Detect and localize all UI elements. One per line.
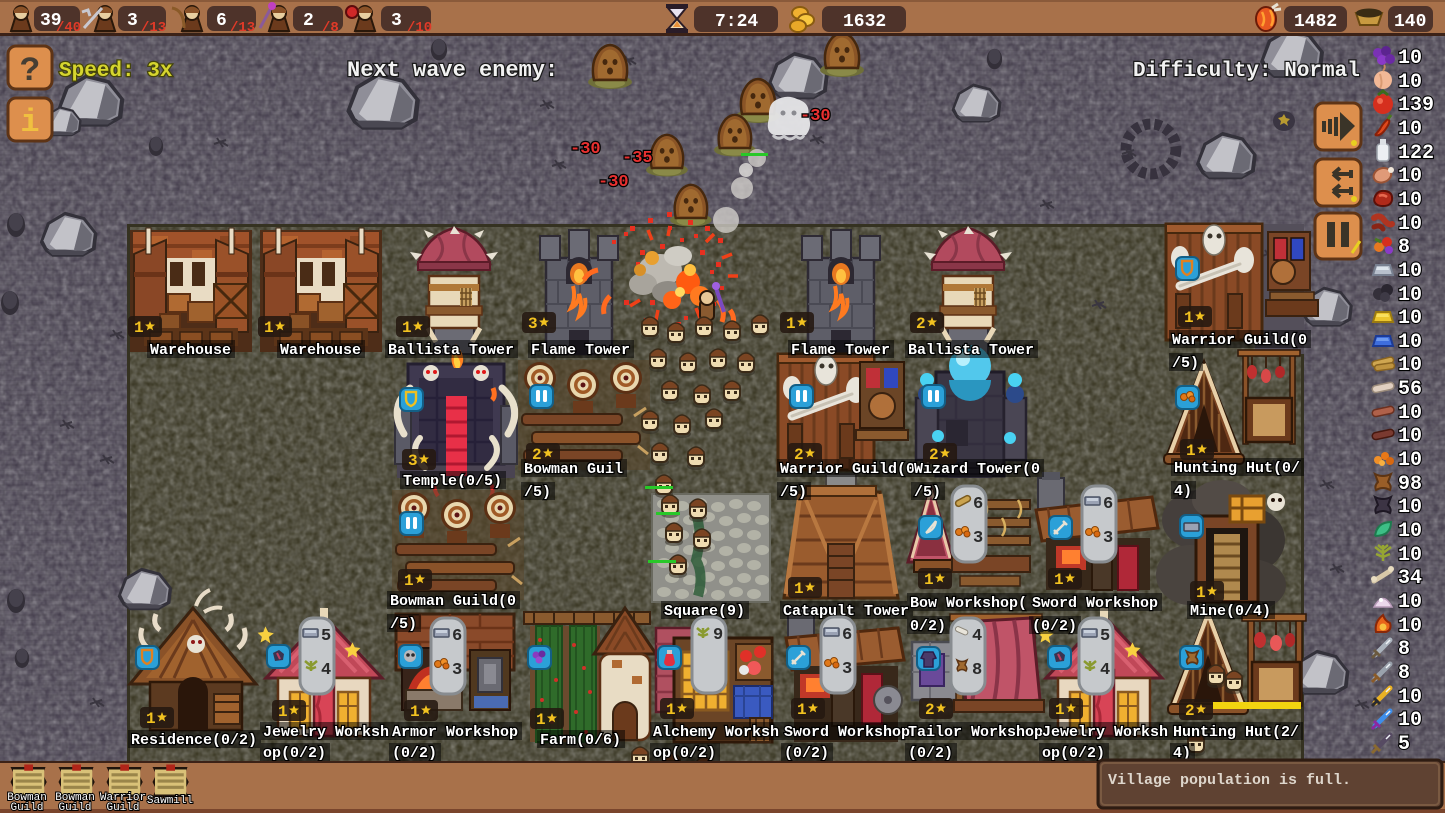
svg-text:5: 5: [1398, 733, 1410, 756]
svg-text:4: 4: [1100, 661, 1110, 680]
svg-text:1: 1: [404, 572, 414, 590]
svg-text:Residence(0/2): Residence(0/2): [131, 732, 257, 749]
svg-text:10: 10: [1398, 520, 1422, 543]
svg-text:10: 10: [1398, 213, 1422, 236]
svg-text:Flame Tower: Flame Tower: [531, 342, 630, 359]
svg-text:1482: 1482: [1294, 12, 1337, 32]
svg-text:2: 2: [532, 446, 542, 464]
svg-text:1: 1: [402, 319, 412, 337]
svg-text:Hunting Hut(0/: Hunting Hut(0/: [1174, 460, 1300, 477]
svg-text:2: 2: [925, 701, 935, 719]
svg-text:Village population is full.: Village population is full.: [1108, 772, 1351, 789]
svg-text:10: 10: [1398, 118, 1422, 141]
svg-text:1: 1: [786, 315, 796, 333]
svg-text:4): 4): [1174, 483, 1192, 500]
svg-text:10: 10: [1398, 615, 1422, 638]
svg-text:10: 10: [1398, 331, 1422, 354]
svg-text:1: 1: [1055, 701, 1065, 719]
svg-text:Next wave enemy:: Next wave enemy:: [347, 58, 558, 83]
svg-text:10: 10: [1398, 47, 1422, 70]
svg-text:-35: -35: [622, 149, 653, 168]
svg-text:Sword Workshop: Sword Workshop: [784, 724, 910, 741]
svg-text:140: 140: [1394, 12, 1426, 32]
svg-text:/5): /5): [390, 616, 417, 633]
svg-text:(0/2): (0/2): [908, 745, 953, 762]
svg-text:122: 122: [1398, 142, 1434, 165]
svg-text:6: 6: [216, 11, 227, 31]
svg-text:(0/2): (0/2): [392, 745, 437, 762]
svg-text:10: 10: [1398, 260, 1422, 283]
svg-text:1: 1: [794, 580, 804, 598]
svg-text:Guild: Guild: [58, 802, 91, 813]
svg-text:Alchemy Worksh: Alchemy Worksh: [653, 724, 779, 741]
svg-text:Bow Workshop(: Bow Workshop(: [910, 595, 1027, 612]
svg-text:/5): /5): [524, 484, 551, 501]
svg-text:/40: /40: [56, 20, 81, 36]
svg-text:8: 8: [1398, 662, 1410, 685]
svg-text:Warehouse: Warehouse: [150, 342, 231, 359]
svg-text:1: 1: [278, 703, 288, 721]
svg-text:3: 3: [452, 661, 462, 680]
svg-text:10: 10: [1398, 591, 1422, 614]
svg-text:-30: -30: [570, 140, 601, 159]
svg-text:Speed: 3x: Speed: 3x: [59, 60, 173, 83]
svg-text:Difficulty: Normal: Difficulty: Normal: [1133, 60, 1360, 83]
svg-text:10: 10: [1398, 686, 1422, 709]
svg-text:10: 10: [1398, 425, 1422, 448]
svg-text:Farm(0/6): Farm(0/6): [540, 732, 621, 749]
svg-text:/5): /5): [914, 484, 941, 501]
svg-text:10: 10: [1398, 189, 1422, 212]
svg-text:10: 10: [1398, 402, 1422, 425]
svg-text:56: 56: [1398, 378, 1422, 401]
svg-text:(0/2): (0/2): [1032, 618, 1077, 635]
svg-text:10: 10: [1398, 544, 1422, 567]
svg-text:6: 6: [842, 626, 852, 645]
svg-text:/5): /5): [780, 484, 807, 501]
svg-text:/13: /13: [230, 20, 255, 36]
svg-text:Guild: Guild: [10, 802, 43, 813]
svg-text:1: 1: [264, 319, 274, 337]
svg-text:op(0/2): op(0/2): [653, 745, 716, 762]
svg-text:/10: /10: [407, 20, 432, 36]
svg-text:10: 10: [1398, 307, 1422, 330]
svg-text:10: 10: [1398, 71, 1422, 94]
svg-text:Ballista Tower: Ballista Tower: [908, 342, 1034, 359]
svg-text:Mine(0/4): Mine(0/4): [1190, 603, 1271, 620]
svg-text:1632: 1632: [843, 12, 886, 32]
svg-text:3: 3: [973, 529, 983, 548]
svg-text:8: 8: [1398, 638, 1410, 661]
svg-text:0/2): 0/2): [910, 618, 946, 635]
svg-text:1: 1: [536, 711, 546, 729]
svg-text:Sawmill: Sawmill: [147, 795, 193, 807]
svg-text:4: 4: [972, 627, 982, 646]
svg-text:1: 1: [1054, 571, 1064, 589]
svg-text:3: 3: [127, 11, 138, 31]
svg-text:/13: /13: [141, 20, 166, 36]
svg-text:Armor Workshop: Armor Workshop: [392, 724, 518, 741]
svg-text:1: 1: [1196, 584, 1206, 602]
svg-text:-30: -30: [598, 173, 629, 192]
svg-text:10: 10: [1398, 354, 1422, 377]
svg-text:Ballista Tower: Ballista Tower: [388, 342, 514, 359]
svg-text:Bowman Guild(0: Bowman Guild(0: [390, 593, 516, 610]
svg-text:5: 5: [1100, 627, 1110, 646]
svg-text:2: 2: [303, 11, 314, 31]
svg-text:8: 8: [972, 661, 982, 680]
svg-text:8: 8: [1398, 236, 1410, 259]
svg-text:1: 1: [1186, 442, 1196, 460]
svg-text:Guild: Guild: [106, 802, 139, 813]
svg-text:10: 10: [1398, 496, 1422, 519]
svg-text:Jewelry Worksh: Jewelry Worksh: [1042, 724, 1168, 741]
svg-text:10: 10: [1398, 284, 1422, 307]
svg-text:(0/2): (0/2): [784, 745, 829, 762]
svg-text:1: 1: [410, 703, 420, 721]
svg-text:Tailor Workshop: Tailor Workshop: [908, 724, 1043, 741]
svg-text:6: 6: [973, 495, 983, 514]
svg-text:/5): /5): [1172, 355, 1199, 372]
svg-text:10: 10: [1398, 165, 1422, 188]
svg-text:10: 10: [1398, 449, 1422, 472]
svg-text:Jewelry Worksh: Jewelry Worksh: [263, 724, 389, 741]
svg-text:10: 10: [1398, 709, 1422, 732]
svg-text:1: 1: [666, 701, 676, 719]
svg-text:Warehouse: Warehouse: [280, 342, 361, 359]
svg-text:2: 2: [929, 446, 939, 464]
svg-text:Temple(0/5): Temple(0/5): [403, 473, 502, 490]
svg-text:1: 1: [924, 571, 934, 589]
svg-text:2: 2: [916, 315, 926, 333]
svg-text:9: 9: [713, 626, 723, 645]
svg-text:2: 2: [1185, 702, 1195, 720]
svg-text:34: 34: [1398, 567, 1422, 590]
svg-text:/8: /8: [322, 20, 339, 36]
svg-text:1: 1: [146, 710, 156, 728]
svg-text:7:24: 7:24: [715, 12, 758, 32]
svg-text:Sword Workshop: Sword Workshop: [1032, 595, 1158, 612]
svg-text:Hunting Hut(2/: Hunting Hut(2/: [1173, 724, 1299, 741]
svg-text:1: 1: [134, 319, 144, 337]
svg-text:i: i: [20, 104, 39, 141]
svg-text:3: 3: [408, 452, 418, 470]
svg-text:op(0/2): op(0/2): [1042, 745, 1105, 762]
svg-text:3: 3: [842, 660, 852, 679]
svg-text:op(0/2): op(0/2): [263, 745, 326, 762]
svg-text:1: 1: [1184, 309, 1194, 327]
svg-text:4: 4: [321, 661, 331, 680]
svg-text:-30: -30: [800, 107, 831, 126]
svg-text:Warrior Guild(0: Warrior Guild(0: [1172, 332, 1307, 349]
svg-text:98: 98: [1398, 473, 1422, 496]
svg-text:3: 3: [528, 315, 538, 333]
svg-text:1: 1: [797, 701, 807, 719]
svg-text:5: 5: [321, 627, 331, 646]
svg-text:3: 3: [1103, 529, 1113, 548]
svg-text:?: ?: [20, 53, 40, 91]
svg-text:6: 6: [452, 627, 462, 646]
svg-text:2: 2: [794, 446, 804, 464]
svg-text:139: 139: [1398, 94, 1434, 117]
svg-text:6: 6: [1103, 495, 1113, 514]
svg-text:Flame Tower: Flame Tower: [791, 342, 890, 359]
svg-text:3: 3: [391, 11, 402, 31]
